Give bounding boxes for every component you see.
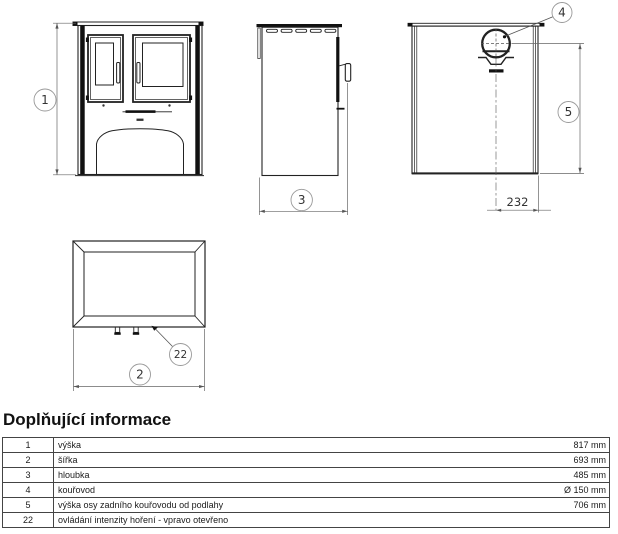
callout-5: 5 [558,102,579,123]
callout-2: 2 [130,364,151,385]
leader-control [152,326,173,347]
top-view [73,241,205,335]
info-title: Doplňující informace [3,410,171,430]
leader-flue [503,17,554,39]
svg-text:3: 3 [298,193,306,207]
row-number: 3 [3,468,54,482]
left-door-glass [96,43,114,85]
table-row: 4 kouřovod Ø 150 mm [2,483,610,498]
left-door [86,35,123,102]
right-door-hinge-top [189,38,192,43]
svg-text:2: 2 [136,368,144,382]
row-number: 5 [3,498,54,512]
dimension-232: 232 [487,176,551,213]
wood-niche-arch [97,129,184,175]
table-row: 5 výška osy zadního kouřovodu od podlahy… [2,498,610,513]
front-view [73,22,204,176]
row-value: Ø 150 mm [564,483,609,497]
row-value: 706 mm [573,498,609,512]
side-vent-dashes [267,29,336,32]
side-view [257,24,351,176]
side-door-handle [345,64,350,82]
right-door-glass [143,43,184,87]
rear-view [408,23,544,211]
row-number: 1 [3,438,54,452]
side-control-tick [337,108,345,110]
row-value [606,513,609,527]
left-door-hinge-bottom [86,96,89,101]
table-row: 22 ovládání intenzity hoření - vpravo ot… [2,513,610,528]
svg-text:232: 232 [507,195,529,209]
row-number: 22 [3,513,54,527]
right-door-hinge-bottom [189,96,192,101]
svg-text:5: 5 [565,105,573,119]
row-value: 485 mm [573,468,609,482]
svg-text:4: 4 [558,6,566,20]
row-label: výška [54,438,573,452]
svg-text:1: 1 [41,93,49,107]
dimension-height [53,23,76,175]
top-inner [84,252,195,316]
side-body [262,27,338,175]
table-row: 3 hloubka 485 mm [2,468,610,483]
callout-3: 3 [291,189,312,210]
row-label: ovládání intenzity hoření - vpravo otevř… [54,513,606,527]
callout-22: 22 [170,344,192,366]
callout-1: 1 [34,89,56,111]
right-door [133,35,192,102]
row-label: hloubka [54,468,573,482]
top-outer [73,241,205,327]
rear-body [412,26,538,174]
right-door-handle [137,63,140,84]
table-row: 2 šířka 693 mm [2,453,610,468]
row-value: 817 mm [573,438,609,452]
row-label: šířka [54,453,573,467]
side-rear-bracket [258,28,260,59]
row-label: kouřovod [54,483,564,497]
row-label: výška osy zadního kouřovodu od podlahy [54,498,573,512]
row-number: 4 [3,483,54,497]
svg-text:22: 22 [174,349,187,361]
info-table: 1 výška 817 mm 2 šířka 693 mm 3 hloubka … [2,437,610,528]
side-door-edge [336,37,339,102]
control-knobs [114,327,139,335]
table-row: 1 výška 817 mm [2,437,610,453]
left-door-handle [117,63,120,84]
row-number: 2 [3,453,54,467]
technical-drawing: 1 [0,0,618,404]
row-value: 693 mm [573,453,609,467]
left-door-hinge-top [86,38,89,43]
callout-4: 4 [552,3,572,23]
stove-datasheet-page: 1 [0,0,618,534]
front-control-mark [137,119,144,121]
